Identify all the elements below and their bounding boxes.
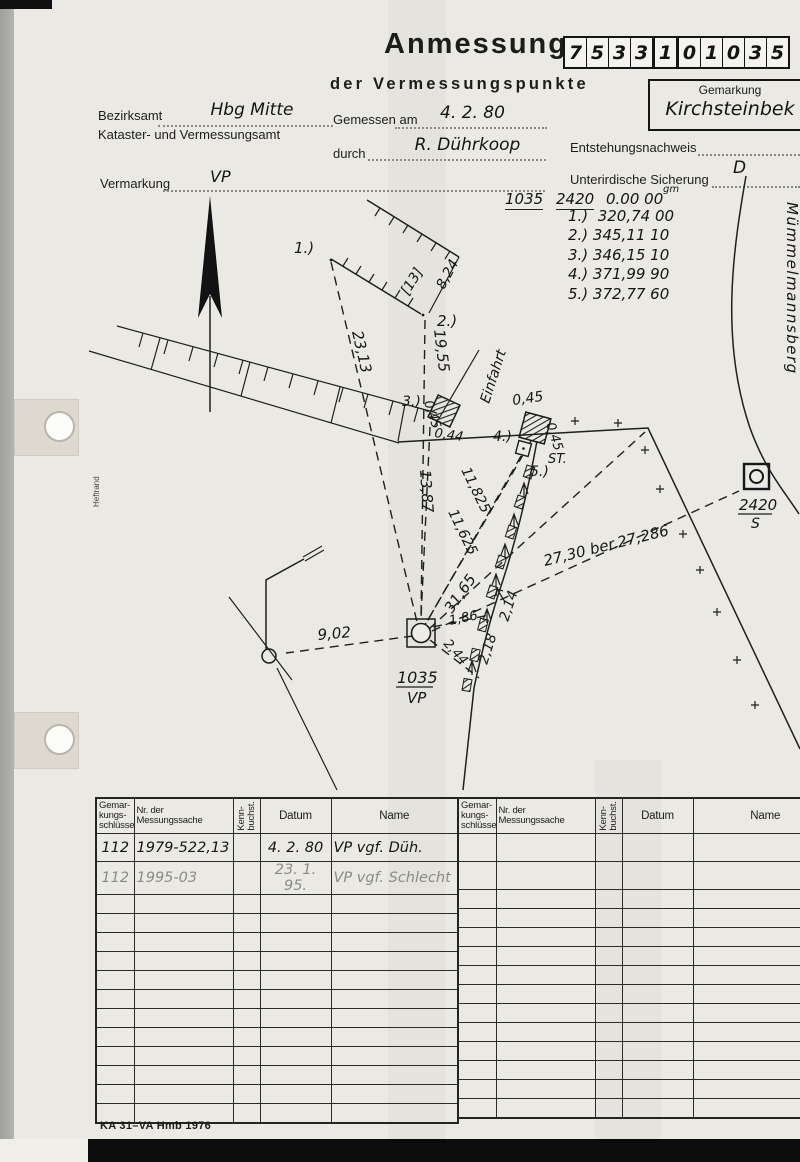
punch-hole [44, 411, 75, 442]
digit-cell: 0 [676, 38, 700, 67]
bearing-list: 1.) 320,74 00 2.) 345,11 10 3.) 346,15 1… [568, 207, 674, 304]
obs-point-number: 1035 [505, 190, 543, 210]
empty-row [96, 1009, 458, 1028]
measure-2-14: 2,14 [497, 589, 522, 624]
digit-cell: 1 [700, 38, 722, 67]
north-arrow [198, 196, 222, 412]
digit-cell: 1 [652, 38, 676, 67]
st-label: ST. [548, 452, 567, 467]
empty-row [458, 1099, 800, 1118]
gemarkung-label: Gemarkung [650, 83, 800, 97]
empty-row [96, 914, 458, 933]
measure-31-65: 31,65 [441, 571, 480, 617]
punch-hole [44, 724, 75, 755]
measurement-log-table-left: Gemar- kungs- schlüssel Nr. der Messungs… [95, 797, 459, 1124]
point-4-marker [519, 412, 551, 444]
empty-row [96, 1066, 458, 1085]
vermarkung-value: VP [210, 167, 231, 186]
field-rule [712, 185, 800, 188]
col-kennbuchstabe: Kenn- buchst. [233, 798, 260, 834]
bearing-4: 4.) 371,99 90 [568, 265, 674, 284]
table-header-row: Gemar- kungs- schlüssel Nr. der Messungs… [96, 798, 458, 834]
cell-sache: 1979-522,13 [134, 834, 233, 862]
hole-punch-bottom [14, 712, 79, 769]
amt-label: Kataster- und Vermessungsamt [98, 127, 280, 142]
empty-row [96, 1047, 458, 1066]
empty-row [96, 1085, 458, 1104]
entstehungsnachweis-label: Entstehungsnachweis [570, 140, 696, 155]
digit-cell: 5 [586, 38, 608, 67]
empty-row [458, 890, 800, 909]
street-curve [732, 176, 799, 514]
gemessen-am-value: 4. 2. 80 [400, 103, 545, 123]
cell-name: VP vgf. Schlecht [331, 862, 458, 895]
point-1-label: 1.) [294, 239, 314, 257]
empty-row [458, 1042, 800, 1061]
measurement-log-table-right: Gemar- kungs- schlüssel Nr. der Messungs… [457, 797, 800, 1119]
measure-2-18: 2,18 [476, 632, 501, 667]
hole-punch-top [14, 399, 79, 456]
measure-11-625: 11,625 [444, 507, 480, 558]
digit-cell: 5 [766, 38, 788, 67]
measure-0-45-p4-top: 0,45 [511, 389, 544, 409]
col-messungssache: Nr. der Messungssache [134, 798, 233, 834]
empty-row [458, 1023, 800, 1042]
bearing-2: 2.) 345,11 10 [568, 226, 674, 245]
fence-line [462, 441, 537, 790]
cell-kenn [233, 834, 260, 862]
road-embankment [89, 326, 437, 443]
empty-row [96, 933, 458, 952]
col-gemarkungsschluessel: Gemar- kungs- schlüssel [458, 798, 496, 834]
col-kennbuchstabe: Kenn- buchst. [595, 798, 622, 834]
durch-value: R. Dührkoop [390, 135, 545, 155]
gemarkung-box: Gemarkung Kirchsteinbek [648, 79, 800, 131]
measurement-rays [286, 262, 739, 678]
s-point-type: S [751, 516, 760, 532]
obs-zero-reading: 0.00 00 [606, 190, 663, 208]
empty-row [458, 1080, 800, 1099]
point-4-label: 4.) [493, 429, 512, 445]
empty-row [96, 990, 458, 1009]
empty-row [458, 966, 800, 985]
measure-11-825: 11,825 [457, 465, 493, 516]
scan-corner-black [0, 0, 52, 9]
cell-name: VP vgf. Düh. [331, 834, 458, 862]
empty-row [458, 1004, 800, 1023]
empty-row [458, 947, 800, 966]
measure-1-86: 1,86 [448, 608, 479, 629]
field-rule [368, 158, 546, 161]
form-subtitle: der Vermessungspunkte [330, 75, 589, 94]
measure-23-13: 23,13 [348, 329, 375, 375]
form-id: KA 31–VA Hmb 1976 [100, 1120, 211, 1132]
empty-row [458, 928, 800, 947]
point-5-stone-marker [516, 441, 532, 457]
field-rule [163, 189, 545, 192]
table-row-pencil: 112 1995-03 23. 1. 95. VP vgf. Schlecht [96, 862, 458, 895]
obs-unit: gm [663, 184, 679, 195]
empty-row [96, 895, 458, 914]
empty-row [96, 1028, 458, 1047]
cell-schluessel: 112 [96, 862, 134, 895]
table-row-ink: 112 1979-522,13 4. 2. 80 VP vgf. Düh. [96, 834, 458, 862]
durch-label: durch [333, 146, 366, 161]
col-gemarkungsschluessel: Gemar- kungs- schlüssel [96, 798, 134, 834]
bearing-5: 5.) 372,77 60 [568, 285, 674, 304]
street-name-label: Mümmelmannsberg [783, 202, 800, 375]
left-structure [229, 546, 337, 790]
measure-9-02: 9,02 [317, 623, 352, 644]
empty-row [458, 909, 800, 928]
sicherung-value: D [733, 158, 746, 178]
street-edge [398, 350, 800, 749]
cell-datum: 4. 2. 80 [260, 834, 331, 862]
empty-row [96, 971, 458, 990]
empty-row [96, 952, 458, 971]
field-rule [395, 126, 547, 129]
form-title: Anmessung [384, 28, 568, 61]
bearing-3: 3.) 346,15 10 [568, 246, 674, 265]
s-point-number: 2420 [739, 496, 777, 514]
bezirksamt-label: Bezirksamt [98, 108, 162, 123]
point-5-label: 5.) [530, 464, 549, 480]
boundary-cross-marks [571, 417, 759, 709]
cell-datum: 23. 1. 95. [260, 862, 331, 895]
digit-cell: 3 [630, 38, 652, 67]
scan-edge-strip [0, 0, 14, 1162]
point-number-boxes: 7 5 3 3 1 0 1 0 3 5 [563, 36, 790, 69]
empty-row [458, 1061, 800, 1080]
table-header-row: Gemar- kungs- schlüssel Nr. der Messungs… [458, 798, 800, 834]
empty-row [458, 834, 800, 862]
sicherung-label: Unterirdische Sicherung [570, 172, 709, 187]
scan-bottom-left [0, 1139, 88, 1162]
digit-cell: 3 [608, 38, 630, 67]
bezirksamt-value: Hbg Mitte [172, 100, 332, 120]
digit-cell: 3 [744, 38, 766, 67]
cell-sache: 1995-03 [134, 862, 233, 895]
offset-arrow [496, 589, 505, 602]
col-datum: Datum [622, 798, 693, 834]
einfahrt-label: Einfahrt [478, 347, 510, 405]
vermarkung-label: Vermarkung [100, 176, 170, 191]
s-point-symbol [744, 464, 769, 489]
empty-row [458, 862, 800, 890]
col-name: Name [331, 798, 458, 834]
measure-27-30-ber: 27,30 ber.27,286 [542, 521, 671, 570]
scanned-survey-form: Anmessung der Vermessungspunkte 7 5 3 3 … [0, 0, 800, 1162]
col-messungssache: Nr. der Messungssache [496, 798, 595, 834]
col-name: Name [693, 798, 800, 834]
heftrand-label: Heftrand [92, 476, 101, 507]
digit-cell: 7 [565, 38, 586, 67]
gemarkung-value: Kirchsteinbek [650, 98, 800, 120]
empty-row [458, 985, 800, 1004]
col-datum: Datum [260, 798, 331, 834]
field-rule [698, 153, 800, 156]
cell-kenn [233, 862, 260, 895]
scan-bottom-bar [88, 1139, 800, 1162]
digit-cell: 0 [722, 38, 744, 67]
measure-0-45-p4-side: 0,45 [542, 421, 565, 453]
cell-schluessel: 112 [96, 834, 134, 862]
bearing-1: 1.) 320,74 00 [568, 207, 674, 226]
